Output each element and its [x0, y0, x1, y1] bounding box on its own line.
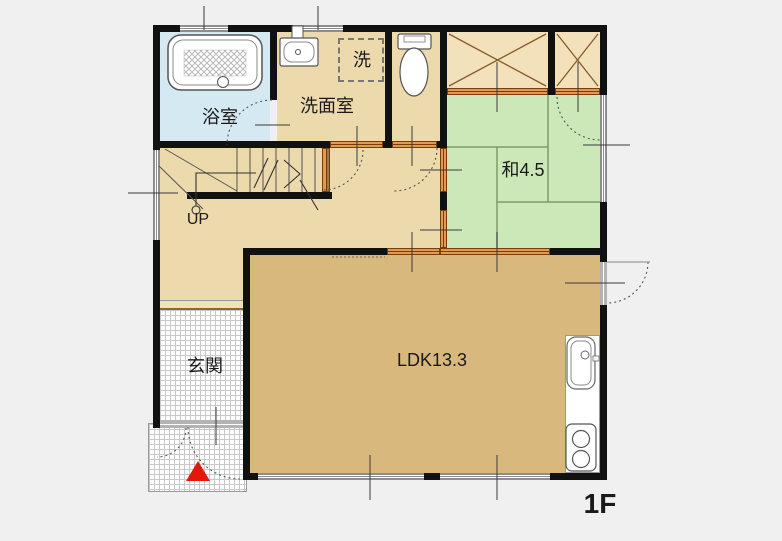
door-swing-arcs	[157, 97, 648, 479]
entrance-label: 玄関	[178, 352, 232, 378]
washbasin-icon	[280, 26, 318, 66]
floor-plan: 浴室 洗面室 洗 和4.5 LDK13.3 玄関 UP 1F	[0, 0, 782, 541]
kitchen-sink-icon	[567, 337, 599, 389]
ldk-label: LDK13.3	[378, 350, 486, 371]
laundry-label: 洗	[349, 46, 375, 72]
japanese-room-label: 和4.5	[490, 156, 556, 182]
stairs-icon	[159, 148, 328, 209]
floor-number-label: 1F	[570, 488, 630, 520]
entrance-marker-icon	[186, 461, 210, 481]
bathroom-label: 浴室	[188, 103, 252, 129]
bathtub-icon	[168, 35, 262, 90]
toilet-icon	[398, 34, 431, 96]
stairs-up-label: UP	[180, 211, 216, 229]
linework-overlay	[0, 0, 782, 541]
front-door-arc-left	[157, 428, 186, 457]
stove-icon	[566, 424, 596, 471]
washroom-label: 洗面室	[285, 92, 369, 118]
stairs-up-arrow	[192, 158, 318, 214]
